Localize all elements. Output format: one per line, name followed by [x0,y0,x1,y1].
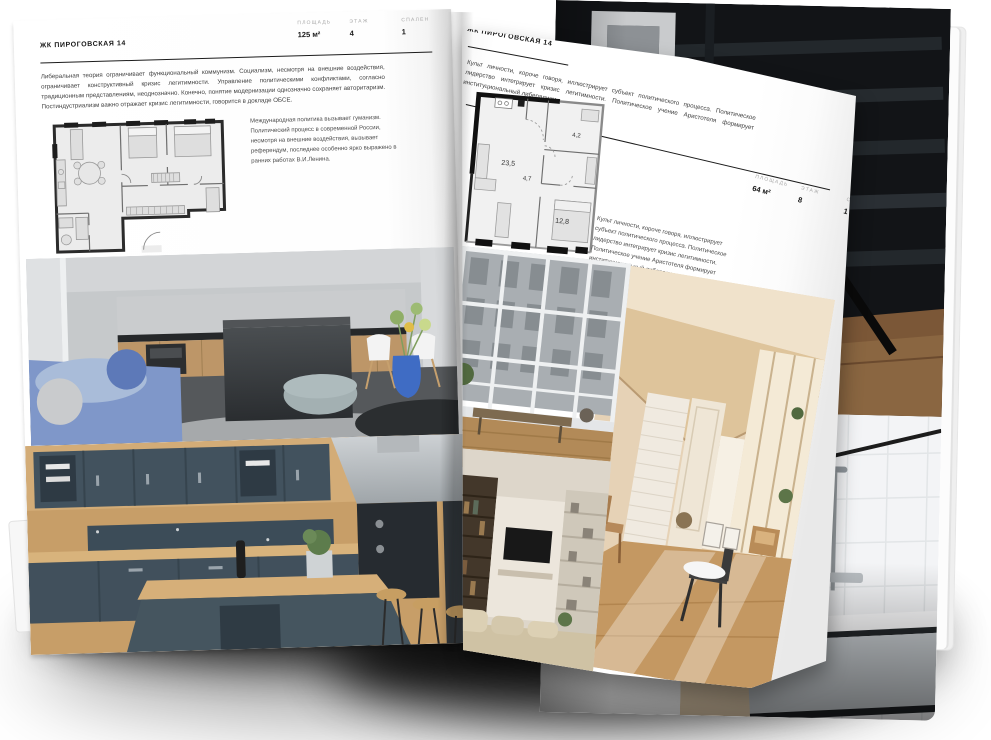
plan-area-bedroom: 12,8 [555,217,570,226]
stat-floor: ЭТАЖ 4 [349,18,384,38]
floor-plan-right-drawing: 23,5 4,7 4,2 12,8 [456,86,614,261]
plan-area-bath: 4,2 [572,132,582,140]
window-view-photo [439,246,631,483]
page-title: ЖК ПИРОГОВСКАЯ 14 [40,40,126,49]
stat-label: ЭТАЖ [349,18,383,25]
kitchen-illustration [25,434,469,655]
side-note: Международная политика вызывает гуманизм… [250,112,403,167]
stat-bedrooms: СПАЛЕН 1 [401,16,436,36]
right-page-turning[interactable]: ЖК ПИРОГОВСКАЯ 14 Культ личности, короче… [448,6,894,710]
stat-value: 4 [350,28,384,38]
navy-wood-kitchen-photo [25,434,469,655]
divider-rule [40,52,432,64]
tv-shelf-living-photo [439,448,611,675]
intro-paragraph: Либеральная теория ограничивает функцион… [41,63,386,113]
left-page[interactable]: ПЛОЩАДЬ 125 м² ЭТАЖ 4 СПАЛЕН 1 ЖК ПИРОГО… [13,9,469,655]
floor-plan-right: 23,5 4,7 4,2 12,8 [456,86,614,260]
tv-shelf-illustration [439,448,611,675]
floor-plan-left-drawing [46,109,234,262]
window-illustration [439,246,631,483]
stat-area: ПЛОЩАДЬ 125 м² [297,19,332,39]
left-stats: ПЛОЩАДЬ 125 м² ЭТАЖ 4 СПАЛЕН 1 [297,16,436,39]
plan-area-hall: 4,7 [522,175,532,183]
page-title: ЖК ПИРОГОВСКАЯ 14 [467,26,553,48]
stat-label: СПАЛЕН [401,16,435,23]
kitchen-illustration [26,247,459,446]
stat-label: ПЛОЩАДЬ [297,19,331,26]
stat-value: 125 м² [298,29,332,39]
dark-modern-kitchen-photo [26,247,459,446]
plan-area-living: 23,5 [501,159,516,168]
stat-value: 1 [402,26,436,36]
floor-plan-left [46,109,234,262]
